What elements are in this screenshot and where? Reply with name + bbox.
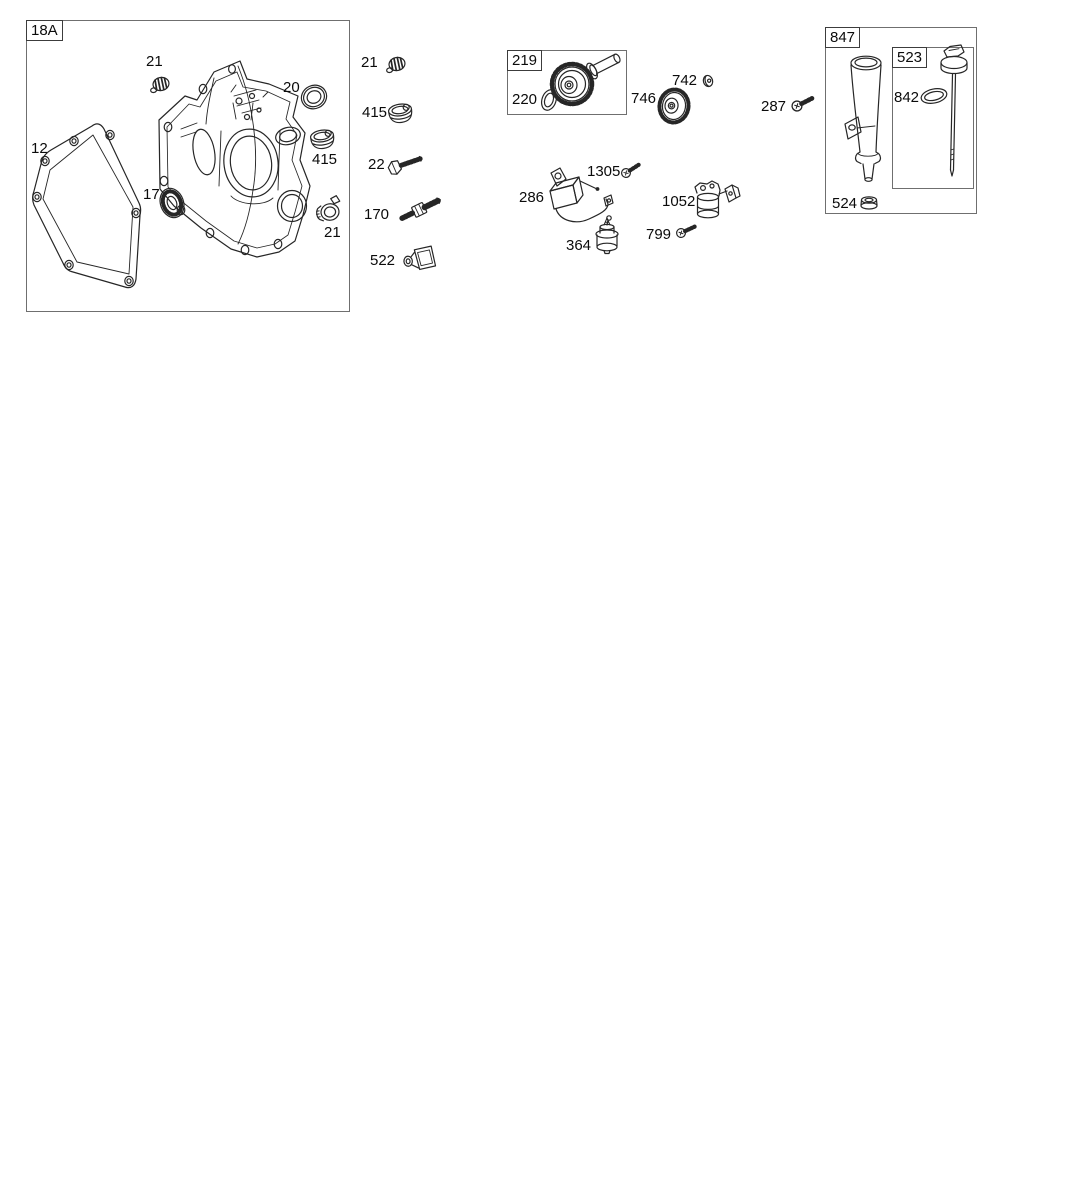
part-label-220: 220	[512, 91, 537, 108]
oil-seal-20-drawing	[297, 81, 330, 113]
cap-415-column-drawing	[388, 103, 413, 124]
part-label-415-column: 415	[362, 104, 387, 121]
part-label-20: 20	[283, 79, 300, 96]
gasket-12-drawing	[33, 124, 141, 288]
dipstick-drawing	[941, 45, 967, 176]
part-label-21-lower: 21	[324, 224, 341, 241]
clip-742-drawing	[702, 74, 714, 87]
diagram-artwork	[0, 0, 1073, 1200]
part-label-12: 12	[31, 140, 48, 157]
part-label-746: 746	[631, 90, 656, 107]
parts-diagram-page: 18A 219 847 523 21 20 12 415 17 21 21 41…	[0, 0, 1073, 1200]
group-label-219: 219	[507, 50, 542, 71]
stud-170-drawing	[400, 195, 443, 224]
part-label-364: 364	[566, 237, 591, 254]
gear-assembly-219-drawing	[552, 50, 623, 104]
valve-364-drawing	[596, 216, 618, 254]
part-label-22: 22	[368, 156, 385, 173]
bolt-22-drawing	[387, 152, 424, 176]
part-label-524: 524	[832, 195, 857, 212]
washer-220-drawing	[539, 88, 559, 112]
group-label-18A: 18A	[26, 20, 63, 41]
cap-415-cover-drawing	[310, 129, 335, 150]
part-label-742: 742	[672, 72, 697, 89]
group-label-523: 523	[892, 47, 927, 68]
screw-287-drawing	[790, 94, 814, 113]
pump-1052-drawing	[695, 181, 740, 218]
part-label-170: 170	[364, 206, 389, 223]
part-label-1305: 1305	[587, 163, 620, 180]
part-label-522: 522	[370, 252, 395, 269]
part-label-21-column: 21	[361, 54, 378, 71]
seal-524-drawing	[861, 197, 877, 209]
part-label-799: 799	[646, 226, 671, 243]
plug-21-top-drawing	[148, 76, 170, 93]
part-label-21-top: 21	[146, 53, 163, 70]
group-label-847: 847	[825, 27, 860, 48]
plug-21-lower-drawing	[314, 195, 343, 222]
part-label-286: 286	[519, 189, 544, 206]
plug-21-column-drawing	[384, 56, 406, 73]
screw-799-drawing	[675, 223, 696, 239]
screw-1305-drawing	[620, 161, 641, 179]
oil-fill-tube-drawing	[845, 56, 881, 181]
part-label-415-cover: 415	[312, 151, 337, 168]
o-ring-842-drawing	[920, 86, 948, 105]
clip-522-drawing	[403, 246, 436, 271]
part-label-287: 287	[761, 98, 786, 115]
part-label-17: 17	[143, 186, 160, 203]
part-label-1052: 1052	[662, 193, 695, 210]
gear-746-drawing	[657, 88, 690, 125]
part-label-842: 842	[894, 89, 919, 106]
